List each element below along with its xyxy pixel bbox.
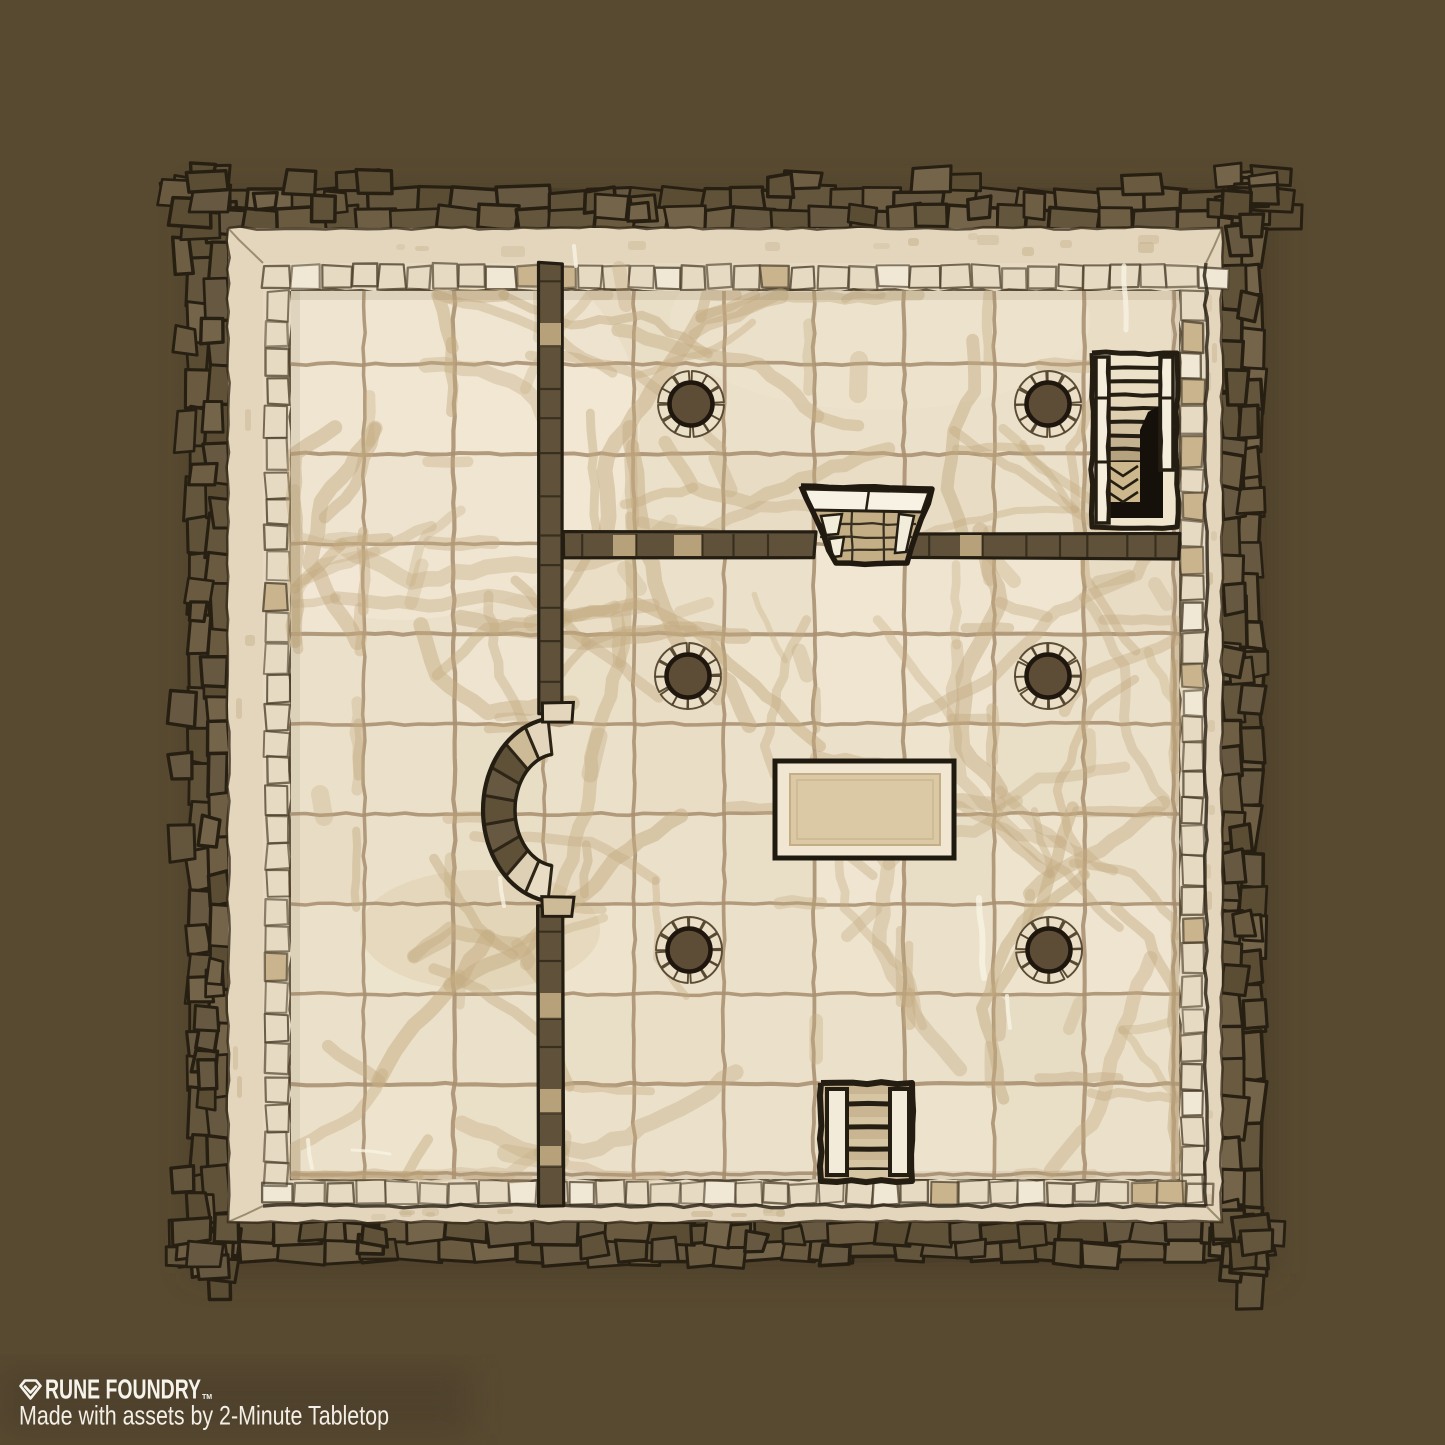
svg-text:Made with assets by 2-Minute T: Made with assets by 2-Minute Tabletop xyxy=(19,1401,389,1431)
